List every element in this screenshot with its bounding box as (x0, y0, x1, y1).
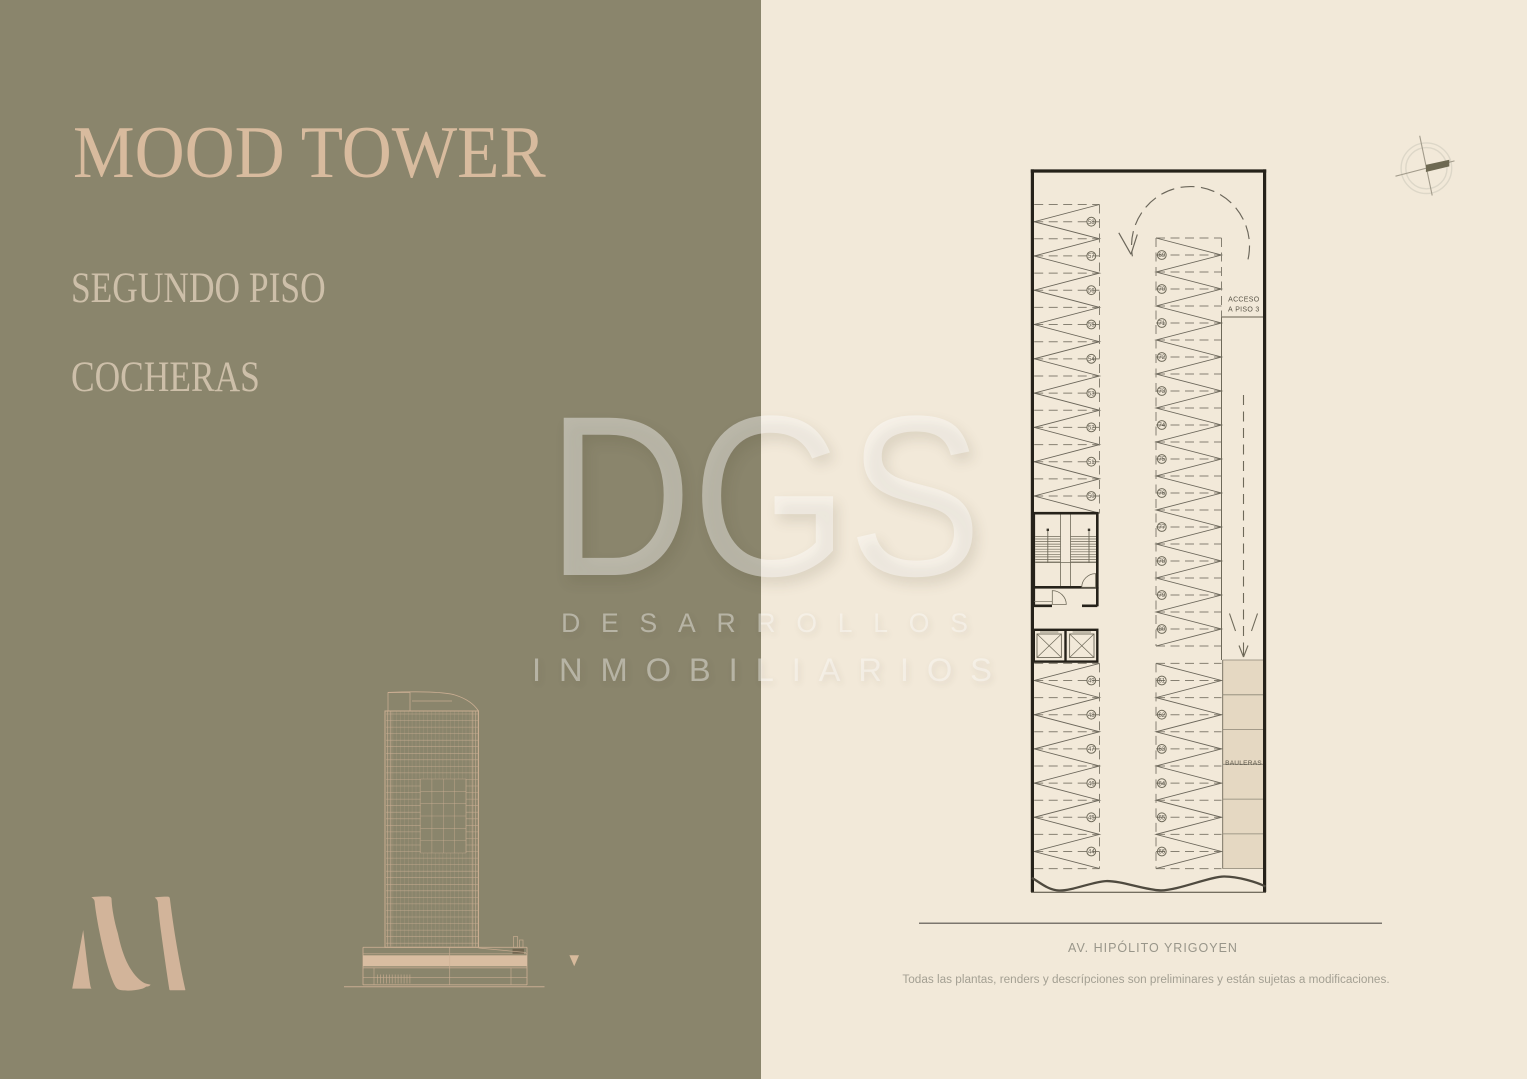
svg-text:46: 46 (1088, 781, 1095, 787)
svg-text:69: 69 (1158, 253, 1165, 259)
svg-text:53: 53 (1088, 391, 1095, 397)
svg-text:ACCESO: ACCESO (1228, 297, 1260, 304)
svg-text:57: 57 (1088, 254, 1095, 260)
svg-text:A PISO 3: A PISO 3 (1228, 307, 1260, 314)
svg-text:77: 77 (1158, 525, 1165, 531)
svg-text:56: 56 (1088, 288, 1095, 294)
svg-text:70: 70 (1158, 287, 1165, 293)
svg-text:80: 80 (1158, 627, 1165, 633)
svg-text:55: 55 (1088, 323, 1095, 329)
svg-text:BAULERAS: BAULERAS (1225, 760, 1262, 767)
svg-text:44: 44 (1088, 850, 1095, 856)
svg-text:65: 65 (1158, 816, 1165, 822)
svg-text:51: 51 (1088, 460, 1095, 466)
svg-text:50: 50 (1088, 494, 1095, 500)
svg-text:48: 48 (1088, 713, 1095, 719)
svg-text:76: 76 (1158, 491, 1165, 497)
svg-text:49: 49 (1088, 679, 1095, 685)
svg-text:73: 73 (1158, 389, 1165, 395)
svg-text:63: 63 (1158, 747, 1165, 753)
svg-text:62: 62 (1158, 713, 1165, 719)
svg-text:64: 64 (1158, 781, 1165, 787)
svg-text:75: 75 (1158, 457, 1165, 463)
svg-text:47: 47 (1088, 747, 1095, 753)
svg-text:52: 52 (1088, 426, 1095, 432)
svg-text:54: 54 (1088, 357, 1095, 363)
svg-text:66: 66 (1158, 850, 1165, 856)
svg-text:61: 61 (1158, 679, 1165, 685)
svg-text:45: 45 (1088, 816, 1095, 822)
svg-text:72: 72 (1158, 355, 1165, 361)
svg-text:58: 58 (1088, 220, 1095, 226)
svg-text:79: 79 (1158, 593, 1165, 599)
svg-text:71: 71 (1158, 321, 1165, 327)
svg-text:78: 78 (1158, 559, 1165, 565)
svg-text:74: 74 (1158, 423, 1165, 429)
